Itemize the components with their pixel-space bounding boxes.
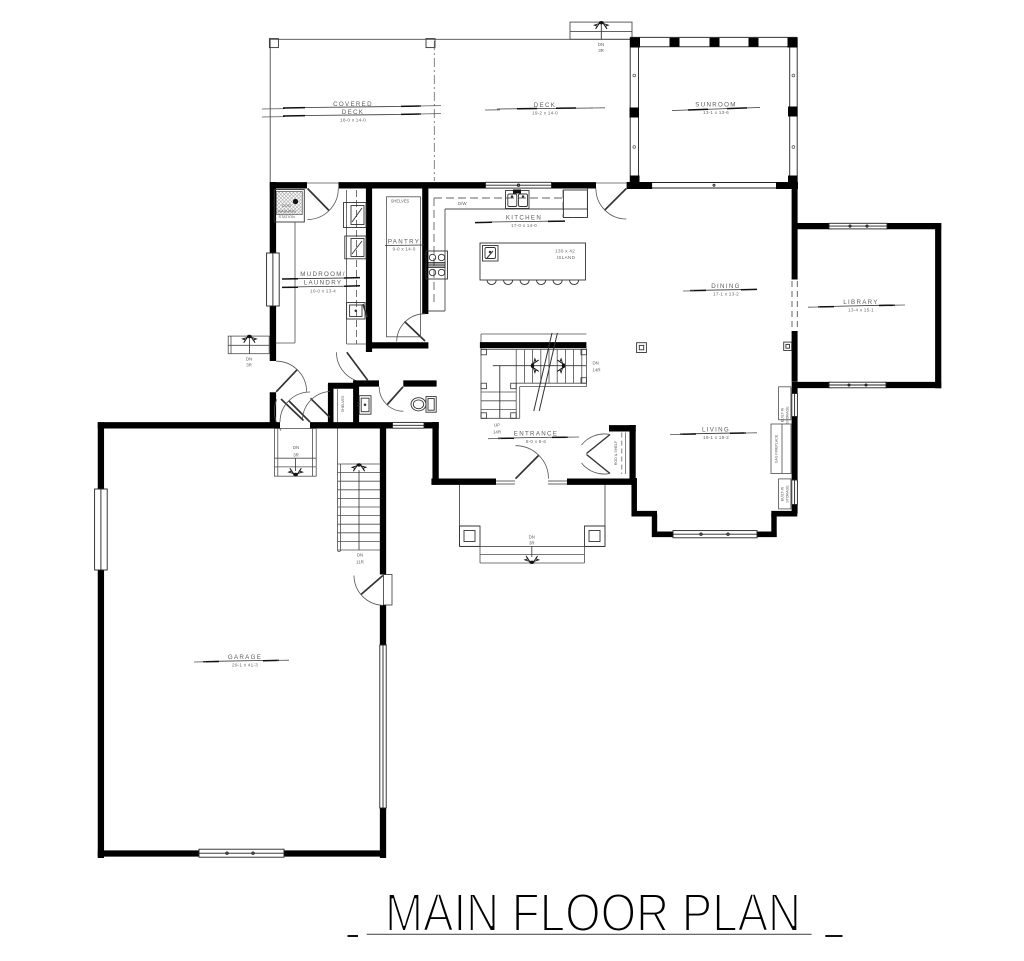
svg-text:D/W: D/W [458, 201, 467, 206]
svg-text:DN: DN [529, 535, 535, 540]
svg-text:17-0 x 14-0: 17-0 x 14-0 [511, 223, 537, 228]
svg-text:17-1 x 13-2: 17-1 x 13-2 [713, 292, 739, 297]
svg-text:19-1 x 19-2: 19-1 x 19-2 [703, 435, 729, 440]
svg-text:DN: DN [293, 445, 299, 450]
svg-text:GAS FIREPLACE: GAS FIREPLACE [775, 434, 779, 463]
svg-text:ENTRANCE: ENTRANCE [514, 431, 558, 438]
svg-text:MUDROOM/: MUDROOM/ [300, 271, 345, 278]
svg-text:3R: 3R [529, 541, 535, 546]
svg-text:10-0 x 13-4: 10-0 x 13-4 [310, 289, 336, 294]
svg-text:DECK: DECK [534, 102, 556, 109]
svg-text:13-1 x 13-6: 13-1 x 13-6 [703, 110, 729, 115]
svg-text:PANTRY: PANTRY [388, 239, 420, 246]
svg-text:8-0 x 8-6: 8-0 x 8-6 [526, 439, 546, 444]
svg-text:STATION: STATION [279, 214, 295, 219]
svg-text:DN: DN [246, 357, 252, 362]
svg-text:LIBRARY: LIBRARY [843, 299, 878, 306]
svg-text:LAUNDRY: LAUNDRY [304, 280, 343, 287]
svg-text:19-2 x 14-0: 19-2 x 14-0 [532, 111, 558, 116]
svg-text:DN: DN [598, 42, 604, 47]
svg-text:SHELVES: SHELVES [341, 395, 345, 412]
svg-text:11R: 11R [356, 560, 364, 565]
svg-text:130 x 42: 130 x 42 [555, 249, 575, 255]
svg-text:14R: 14R [593, 368, 601, 373]
svg-text:ISLAND: ISLAND [557, 255, 576, 261]
svg-text:18-0 x 14-0: 18-0 x 14-0 [340, 118, 366, 123]
svg-text:BUILT-INSTORAGE: BUILT-INSTORAGE [781, 406, 790, 424]
svg-text:KITCHEN: KITCHEN [506, 215, 542, 222]
svg-text:DN: DN [593, 361, 599, 366]
svg-text:DINING: DINING [711, 283, 740, 290]
svg-text:9-0 x 14-0: 9-0 x 14-0 [392, 247, 415, 252]
svg-text:ROD & SHELF: ROD & SHELF [614, 440, 618, 465]
svg-text:WASHING: WASHING [278, 209, 296, 214]
svg-text:DN: DN [357, 553, 363, 558]
svg-text:SHELVES: SHELVES [391, 199, 410, 204]
svg-text:LIVING: LIVING [702, 427, 730, 434]
svg-text:BUILT-INSTORAGE: BUILT-INSTORAGE [781, 485, 790, 503]
svg-text:DOG: DOG [282, 203, 291, 208]
svg-text:SUNROOM: SUNROOM [695, 102, 736, 109]
svg-text:GARAGE: GARAGE [228, 654, 262, 661]
svg-text:UP: UP [494, 423, 500, 428]
svg-text:14R: 14R [493, 430, 501, 435]
svg-text:3R: 3R [598, 48, 604, 53]
svg-text:3R: 3R [246, 363, 252, 368]
svg-text:29-1 x 41-3: 29-1 x 41-3 [232, 663, 258, 668]
svg-text:13-4 x 15-1: 13-4 x 15-1 [848, 308, 874, 313]
svg-text:3R: 3R [293, 452, 299, 457]
